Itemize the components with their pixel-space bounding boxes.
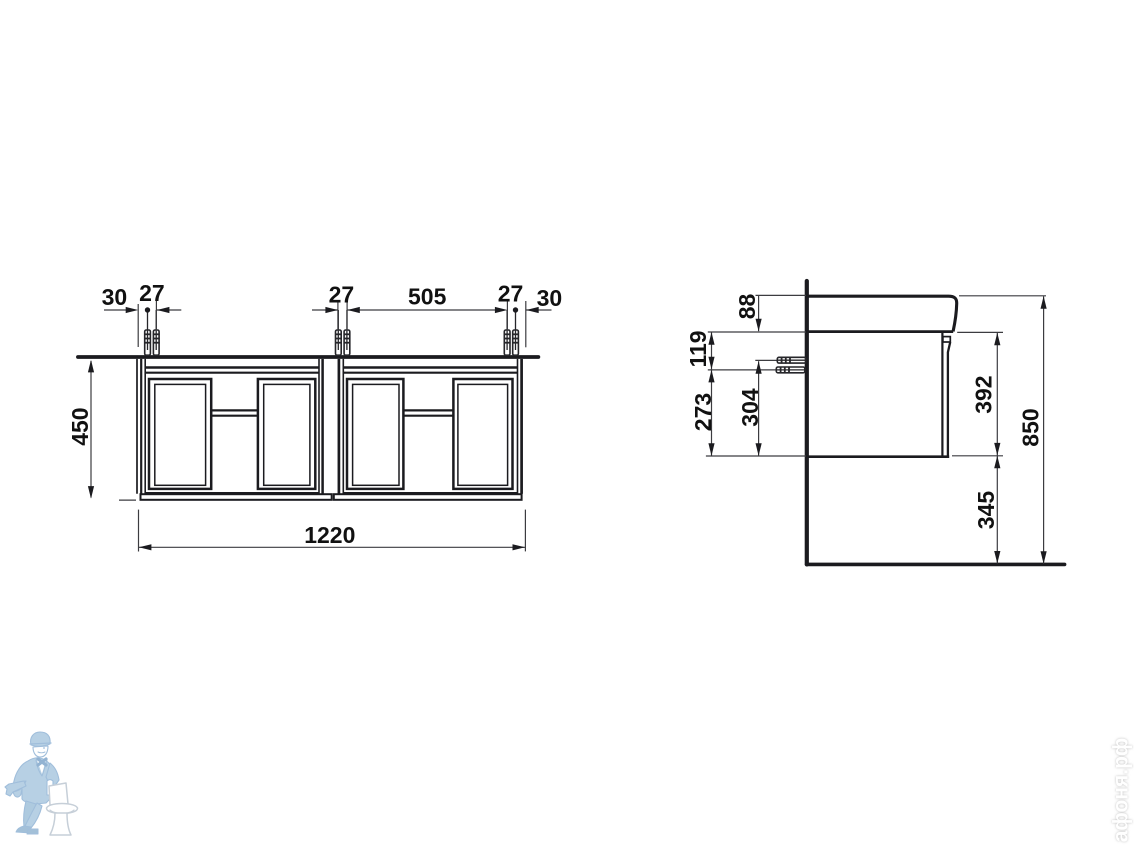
svg-text:850: 850 <box>1018 408 1044 446</box>
svg-text:27: 27 <box>329 282 355 308</box>
svg-text:505: 505 <box>408 283 447 309</box>
svg-text:27: 27 <box>139 280 165 306</box>
svg-text:119: 119 <box>685 330 711 367</box>
svg-text:304: 304 <box>737 388 763 427</box>
svg-text:392: 392 <box>971 375 997 413</box>
svg-text:30: 30 <box>102 284 128 310</box>
svg-text:30: 30 <box>537 285 563 311</box>
svg-text:345: 345 <box>973 491 999 530</box>
svg-text:450: 450 <box>67 407 93 445</box>
svg-text:273: 273 <box>690 393 716 431</box>
svg-text:1220: 1220 <box>304 522 355 548</box>
svg-text:афоня.рф: афоня.рф <box>1110 738 1133 843</box>
svg-text:27: 27 <box>498 281 524 307</box>
svg-text:88: 88 <box>734 294 760 320</box>
